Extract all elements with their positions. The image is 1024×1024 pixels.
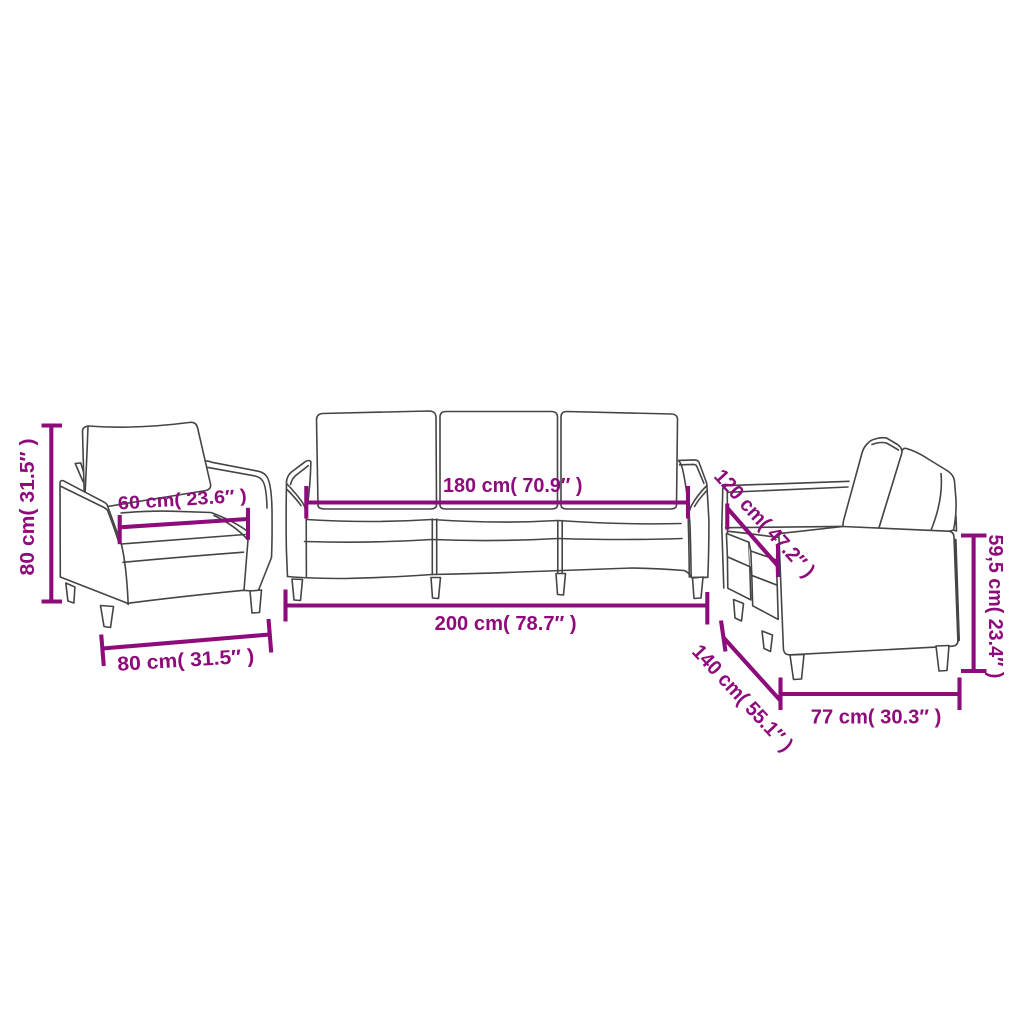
- svg-text:77 cm( 30.3″ ): 77 cm( 30.3″ ): [811, 705, 942, 728]
- svg-text:200 cm( 78.7″ ): 200 cm( 78.7″ ): [435, 612, 577, 635]
- svg-text:59,5 cm( 23.4″ ): 59,5 cm( 23.4″ ): [984, 535, 1007, 679]
- svg-text:80 cm( 31.5″ ): 80 cm( 31.5″ ): [16, 439, 39, 576]
- svg-text:180 cm( 70.9″ ): 180 cm( 70.9″ ): [443, 474, 583, 497]
